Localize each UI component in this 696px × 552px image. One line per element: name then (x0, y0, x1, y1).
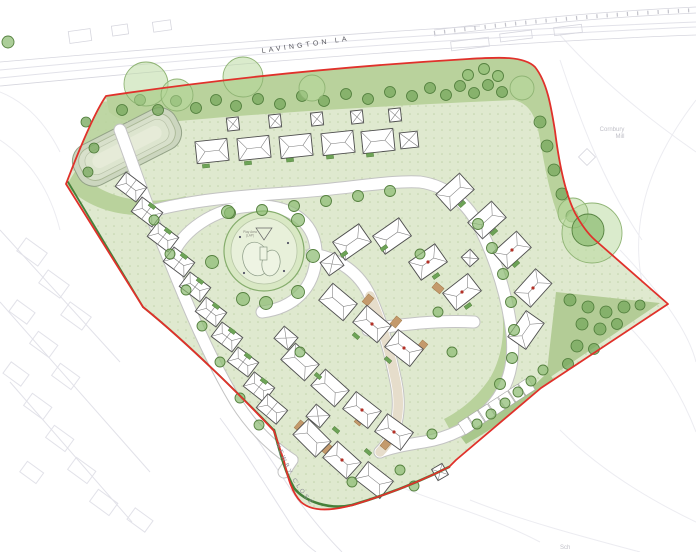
tree-icon (576, 318, 588, 330)
tree-icon (541, 140, 553, 152)
tree-icon (507, 353, 518, 364)
tree-icon (289, 201, 300, 212)
tree-icon (237, 293, 250, 306)
ridge-marker-icon (510, 248, 513, 251)
shrub-icon (244, 161, 251, 165)
tree-icon (292, 286, 305, 299)
ridge-marker-icon (402, 346, 405, 349)
tree-icon (582, 301, 594, 313)
tree-icon (479, 64, 490, 75)
tree-icon (254, 420, 264, 430)
tree-icon (385, 87, 396, 98)
tree-icon (497, 87, 508, 98)
lavington-lane-label: LAVINGTON LANE (0, 0, 350, 55)
tree-icon (363, 94, 374, 105)
tree-icon (594, 323, 606, 335)
school-label: Sch (560, 545, 570, 551)
ridge-marker-icon (360, 408, 363, 411)
tree-icon (564, 294, 576, 306)
garage-footprint (268, 114, 281, 128)
tree-icon (257, 205, 268, 216)
house-footprint (195, 138, 229, 163)
house-footprint (237, 135, 271, 160)
ridge-marker-icon (460, 290, 463, 293)
tree-icon (222, 206, 235, 219)
play-dot (283, 270, 285, 272)
play-dot (239, 236, 241, 238)
cornbury-mill-label-2: Mill (616, 134, 625, 140)
tree-icon (395, 465, 405, 475)
tree-icon (534, 116, 546, 128)
field-line (0, 140, 60, 230)
play-dot (243, 272, 245, 274)
tree-icon (385, 186, 396, 197)
tree-icon (347, 477, 357, 487)
tree-icon (165, 249, 175, 259)
tree-icon (493, 71, 504, 82)
tree-icon (509, 325, 520, 336)
tree-icon (469, 88, 480, 99)
tree-icon (495, 379, 506, 390)
cornbury-mill-building (579, 149, 596, 166)
tree-icon (463, 70, 474, 81)
tree-icon (571, 340, 583, 352)
tree-icon (2, 36, 14, 48)
tree-icon (538, 365, 548, 375)
tree-icon (618, 301, 630, 313)
tree-canopy-icon (510, 76, 534, 100)
tree-icon (483, 80, 494, 91)
tree-icon (253, 94, 264, 105)
tree-icon (548, 164, 560, 176)
house-footprint (361, 128, 395, 153)
tree-icon (572, 214, 604, 246)
tree-icon (600, 306, 612, 318)
tree-icon (307, 250, 320, 263)
tree-icon (513, 387, 523, 397)
tree-icon (498, 269, 509, 280)
cornbury-mill-label: Cornbury (600, 127, 625, 133)
tree-icon (473, 219, 484, 230)
tree-icon (433, 307, 443, 317)
tree-icon (427, 429, 437, 439)
tree-icon (425, 83, 436, 94)
ridge-marker-icon (340, 458, 343, 461)
ridge-marker-icon (392, 430, 395, 433)
garage-footprint (310, 112, 323, 126)
tree-icon (197, 321, 207, 331)
tree-icon (526, 376, 536, 386)
tree-icon (506, 297, 517, 308)
tree-icon (455, 81, 466, 92)
shrub-icon (366, 153, 373, 157)
field-line (0, 92, 60, 152)
tree-icon (292, 214, 305, 227)
tree-icon (260, 297, 273, 310)
tree-icon (486, 409, 496, 419)
tree-icon (295, 347, 305, 357)
garage-footprint (388, 108, 401, 122)
railway-line (434, 7, 696, 36)
tree-icon (321, 196, 332, 207)
tree-canopy-icon (299, 75, 325, 101)
house-footprint (279, 133, 313, 158)
tree-icon (472, 419, 482, 429)
tree-icon (149, 215, 159, 225)
tree-icon (191, 103, 202, 114)
tree-icon (211, 95, 222, 106)
garage-footprint (350, 110, 363, 124)
tree-icon (215, 357, 225, 367)
tree-icon (89, 143, 99, 153)
shrub-icon (202, 164, 209, 168)
tree-icon (341, 89, 352, 100)
house-footprint (321, 130, 355, 155)
tree-icon (415, 249, 425, 259)
ridge-marker-icon (370, 322, 373, 325)
tree-icon (83, 167, 93, 177)
garage-footprint (226, 117, 239, 131)
estate-road-line (0, 302, 150, 472)
tree-icon (153, 105, 164, 116)
tree-icon (500, 398, 510, 408)
tree-icon (487, 243, 498, 254)
shrub-icon (286, 158, 293, 162)
site-plan-drawing: Play Area (LAP) (0, 0, 696, 552)
tree-icon (353, 191, 364, 202)
tree-icon (612, 319, 623, 330)
tree-icon (441, 90, 452, 101)
site-plan-page: Play Area (LAP) (0, 0, 696, 552)
tree-icon (447, 347, 457, 357)
play-dot (287, 242, 289, 244)
ridge-marker-icon (531, 286, 534, 289)
shrub-icon (326, 155, 333, 159)
tree-icon (206, 256, 219, 269)
house-footprint (399, 131, 419, 149)
tree-icon (635, 300, 645, 310)
play-equipment (260, 247, 267, 260)
ridge-marker-icon (426, 260, 429, 263)
tree-icon (275, 99, 286, 110)
tree-icon (231, 101, 242, 112)
tree-icon (181, 285, 191, 295)
tree-icon (117, 105, 128, 116)
tree-icon (407, 91, 418, 102)
play-area-sublabel: (LAP) (246, 234, 254, 238)
